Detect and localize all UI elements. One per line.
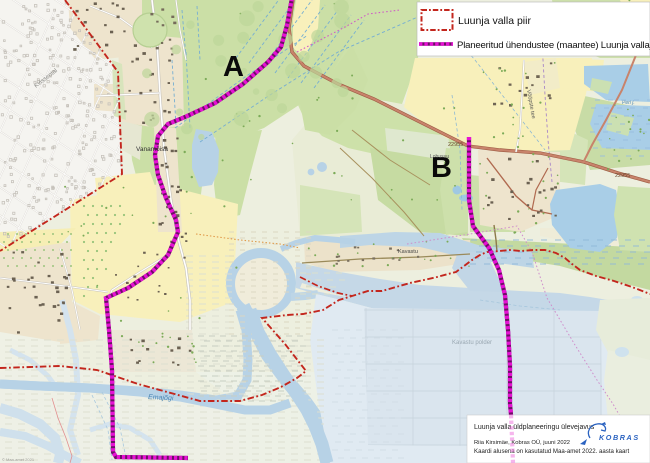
svg-text:Kavastu polder: Kavastu polder bbox=[452, 340, 492, 346]
svg-text:22955: 22955 bbox=[615, 173, 630, 179]
svg-text:Riia Kirsimäe, Kobras OÜ, juun: Riia Kirsimäe, Kobras OÜ, juuni 2022 bbox=[474, 439, 570, 446]
svg-text:Planeeritud ühendustee (maante: Planeeritud ühendustee (maantee) Luunja … bbox=[457, 40, 650, 51]
svg-text:22955: 22955 bbox=[448, 142, 463, 148]
svg-text:Luunja valla piir: Luunja valla piir bbox=[458, 15, 531, 27]
svg-text:Emajõgi: Emajõgi bbox=[148, 394, 174, 402]
svg-text:Kaardi alusena on kasutatud Ma: Kaardi alusena on kasutatud Maa-amet 202… bbox=[474, 448, 629, 455]
svg-text:Kavastu: Kavastu bbox=[398, 249, 418, 255]
svg-text:Vanamõisa: Vanamõisa bbox=[136, 146, 168, 153]
svg-text:Luunja valla üldplaneeringu ül: Luunja valla üldplaneeringu ülevejavus bbox=[474, 424, 595, 431]
svg-text:KOBRAS: KOBRAS bbox=[599, 433, 640, 442]
svg-text:© Maa-amet 2021: © Maa-amet 2021 bbox=[2, 457, 35, 462]
svg-text:A: A bbox=[223, 51, 244, 83]
svg-text:Lohusuu: Lohusuu bbox=[430, 154, 449, 160]
svg-text:Peri j.: Peri j. bbox=[622, 100, 635, 106]
